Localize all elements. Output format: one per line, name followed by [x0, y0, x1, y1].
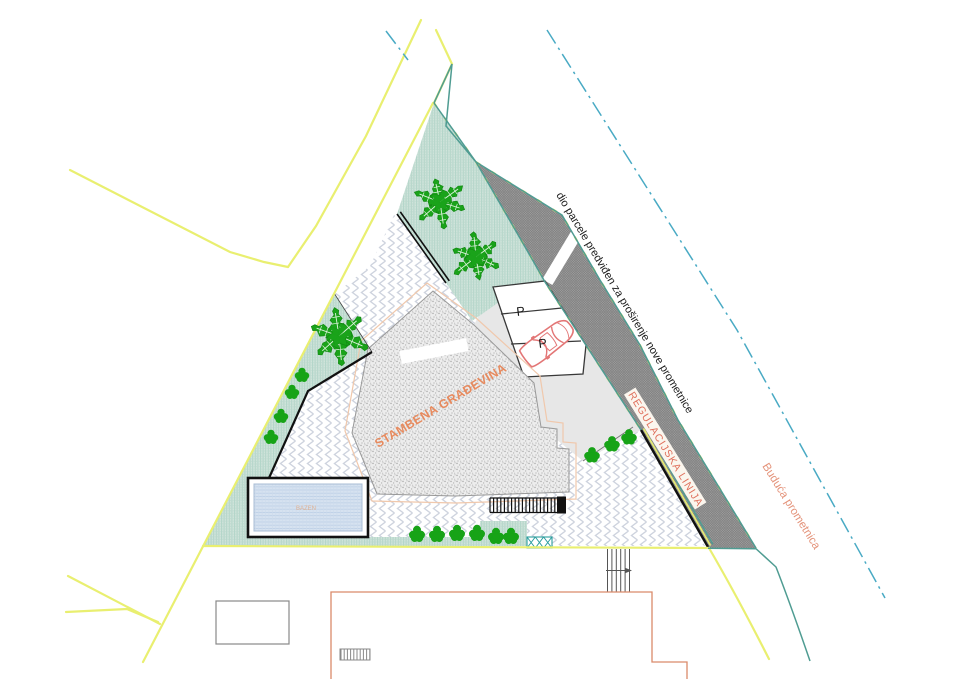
svg-text:P: P — [516, 304, 526, 319]
svg-text:BAZEN: BAZEN — [296, 506, 316, 512]
svg-text:P: P — [538, 336, 548, 351]
